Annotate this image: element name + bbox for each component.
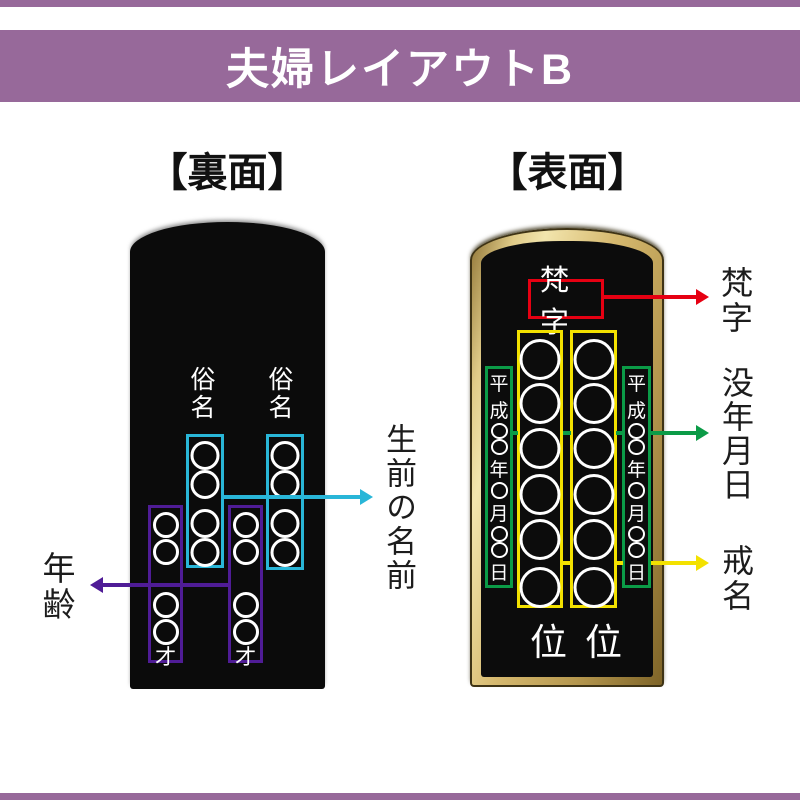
character-circle bbox=[233, 512, 259, 538]
date-circle bbox=[628, 482, 645, 498]
back-face-heading: 【裏面】 bbox=[115, 140, 340, 198]
secular-name-box-left bbox=[186, 434, 224, 568]
date-char: 成 bbox=[627, 396, 646, 423]
rank-char: 位 bbox=[530, 612, 567, 666]
date-arrow-line bbox=[651, 431, 698, 435]
kaimyo-line-segment bbox=[616, 561, 623, 565]
character-circle bbox=[520, 339, 561, 380]
character-circle bbox=[520, 474, 561, 515]
character-circle bbox=[271, 441, 300, 470]
date-circle bbox=[491, 482, 508, 498]
bonji-box: 梵字 bbox=[528, 279, 604, 319]
death-date-box-right: 平 成 年 月 日 bbox=[622, 366, 651, 588]
character-circle bbox=[271, 509, 300, 538]
character-circle bbox=[520, 567, 561, 608]
secular-name-label-right: 俗名 bbox=[267, 366, 292, 422]
character-circle bbox=[191, 509, 220, 538]
age-suffix-char: 才 bbox=[231, 641, 260, 671]
bonji-box-text: 梵字 bbox=[531, 257, 601, 341]
character-circle bbox=[520, 519, 561, 560]
secular-name-box-right bbox=[266, 434, 304, 570]
age-suffix-char: 才 bbox=[151, 641, 180, 671]
top-accent-strip bbox=[0, 0, 800, 7]
character-circle bbox=[233, 592, 259, 618]
date-circle bbox=[491, 526, 508, 542]
kaimyo-label: 戒名 bbox=[720, 544, 752, 614]
character-circle bbox=[573, 519, 614, 560]
character-circle bbox=[573, 383, 614, 424]
bonji-label: 梵字 bbox=[719, 266, 751, 336]
date-line-segment bbox=[563, 431, 571, 435]
front-face-heading: 【表面】 bbox=[455, 140, 680, 198]
kaimyo-arrow-line bbox=[651, 561, 698, 565]
date-line-segment bbox=[616, 431, 623, 435]
bonji-arrow-line bbox=[604, 295, 698, 299]
date-arrow-head bbox=[696, 425, 709, 441]
name-arrow-head bbox=[360, 489, 373, 505]
character-circle bbox=[191, 441, 220, 470]
character-circle bbox=[153, 592, 179, 618]
character-circle bbox=[153, 512, 179, 538]
date-char: 平 bbox=[627, 369, 646, 396]
character-circle bbox=[520, 428, 561, 469]
date-circle bbox=[628, 423, 645, 439]
date-char: 日 bbox=[627, 558, 646, 585]
kaimyo-line-segment bbox=[563, 561, 571, 565]
character-circle bbox=[233, 539, 259, 565]
kaimyo-box-right bbox=[570, 330, 617, 608]
back-tablet: 俗名 俗名 才 才 bbox=[130, 222, 325, 689]
character-circle bbox=[573, 428, 614, 469]
age-box-right: 才 bbox=[228, 505, 263, 663]
front-tablet-panel: 梵字 平 成 bbox=[481, 241, 653, 677]
character-circle bbox=[520, 383, 561, 424]
date-char: 成 bbox=[489, 396, 508, 423]
character-circle bbox=[573, 567, 614, 608]
date-circle bbox=[491, 439, 508, 455]
death-date-box-left: 平 成 年 月 日 bbox=[485, 366, 513, 588]
character-circle bbox=[573, 474, 614, 515]
date-circle bbox=[628, 526, 645, 542]
age-arrow-line bbox=[102, 583, 228, 587]
date-circle bbox=[628, 542, 645, 558]
character-circle bbox=[191, 470, 220, 499]
character-circle bbox=[271, 538, 300, 567]
bonji-arrow-head bbox=[696, 289, 709, 305]
date-circle bbox=[491, 542, 508, 558]
page-title: 夫婦レイアウトB bbox=[226, 35, 574, 97]
layout-guide-page: 夫婦レイアウトB 【裏面】 【表面】 俗名 俗名 才 bbox=[0, 0, 800, 800]
bottom-accent-strip bbox=[0, 793, 800, 800]
date-char: 年 bbox=[489, 455, 508, 482]
character-circle bbox=[573, 339, 614, 380]
name-arrow-line bbox=[223, 495, 362, 499]
age-label: 年齢 bbox=[40, 551, 73, 623]
lifetime-name-label: 生前の名前 bbox=[383, 423, 414, 593]
kaimyo-box-left bbox=[517, 330, 563, 608]
age-arrow-head bbox=[90, 577, 103, 593]
title-banner: 夫婦レイアウトB bbox=[0, 30, 800, 102]
death-date-label: 没年月日 bbox=[720, 366, 752, 502]
rank-char: 位 bbox=[585, 612, 622, 666]
date-char: 月 bbox=[489, 499, 508, 526]
date-line-segment bbox=[512, 431, 518, 435]
date-char: 平 bbox=[489, 369, 508, 396]
rank-char-row: 位 位 bbox=[511, 612, 641, 666]
kaimyo-arrow-head bbox=[696, 555, 709, 571]
date-circle bbox=[491, 423, 508, 439]
date-char: 日 bbox=[489, 558, 508, 585]
secular-name-label-left: 俗名 bbox=[189, 366, 214, 422]
date-char: 年 bbox=[627, 455, 646, 482]
character-circle bbox=[153, 539, 179, 565]
character-circle bbox=[191, 538, 220, 567]
date-circle bbox=[628, 439, 645, 455]
date-char: 月 bbox=[627, 499, 646, 526]
